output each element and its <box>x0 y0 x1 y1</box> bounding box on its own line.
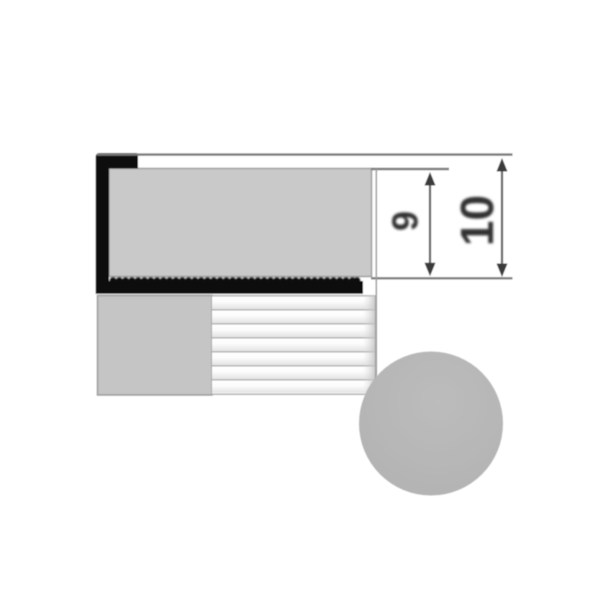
svg-text:9: 9 <box>385 211 426 231</box>
svg-text:10: 10 <box>451 195 503 246</box>
